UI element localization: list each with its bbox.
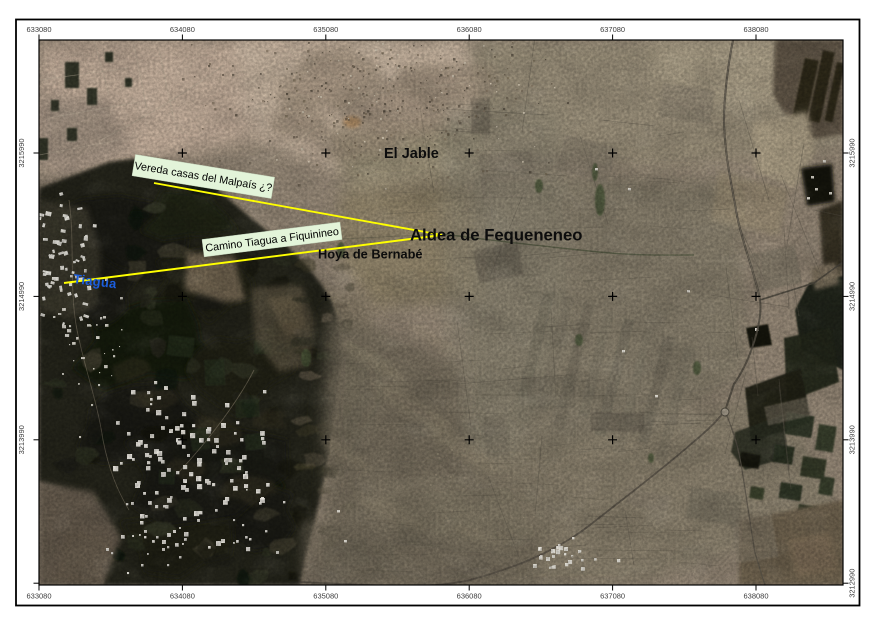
svg-text:638080: 638080 (743, 25, 768, 34)
svg-text:635080: 635080 (313, 592, 338, 601)
svg-text:3214990: 3214990 (17, 282, 26, 311)
svg-text:635080: 635080 (313, 25, 338, 34)
svg-text:3213990: 3213990 (17, 425, 26, 454)
svg-text:637080: 637080 (600, 25, 625, 34)
svg-text:633080: 633080 (26, 592, 51, 601)
svg-text:3215990: 3215990 (17, 138, 26, 167)
svg-text:Aldea de Fequeneneo: Aldea de Fequeneneo (410, 226, 582, 245)
svg-text:636080: 636080 (457, 25, 482, 34)
svg-text:633080: 633080 (26, 25, 51, 34)
svg-text:3214990: 3214990 (848, 282, 857, 311)
svg-text:3213990: 3213990 (848, 425, 857, 454)
svg-text:El Jable: El Jable (384, 146, 439, 162)
svg-text:634080: 634080 (170, 592, 195, 601)
svg-text:3212990: 3212990 (848, 569, 857, 598)
svg-text:636080: 636080 (457, 592, 482, 601)
svg-text:Hoya de Bernabé: Hoya de Bernabé (318, 247, 423, 262)
svg-text:638080: 638080 (743, 592, 768, 601)
svg-text:637080: 637080 (600, 592, 625, 601)
svg-text:3215990: 3215990 (848, 138, 857, 167)
svg-text:634080: 634080 (170, 25, 195, 34)
